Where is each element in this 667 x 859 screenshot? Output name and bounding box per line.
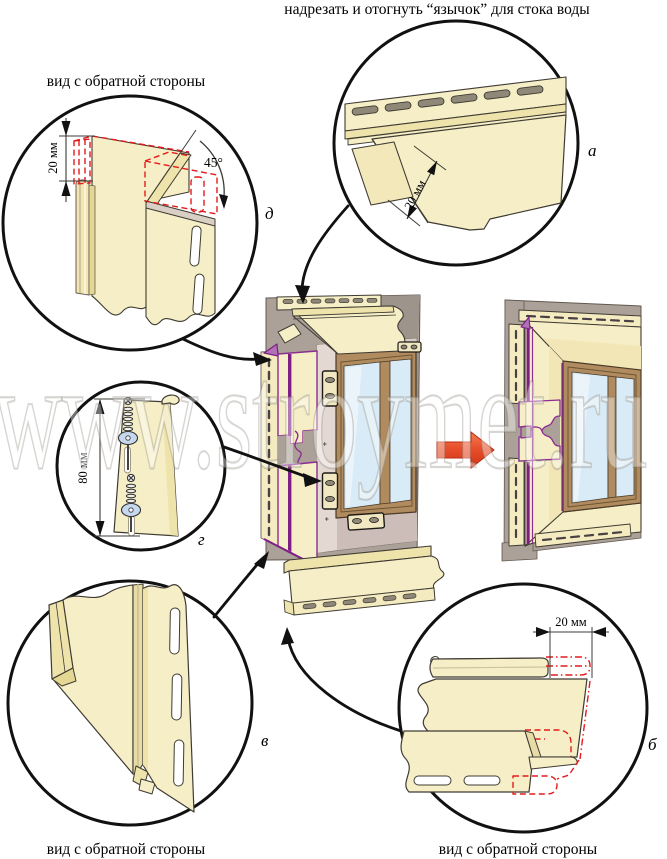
svg-text:вид с обратной стороны: вид с обратной стороны — [47, 841, 206, 858]
svg-text:45°: 45° — [204, 155, 223, 170]
svg-text:вид с обратной стороны: вид с обратной стороны — [47, 73, 206, 90]
svg-text:в: в — [261, 731, 269, 750]
svg-text:надрезать и отогнуть “язычок”: надрезать и отогнуть “язычок” для стока … — [284, 1, 590, 18]
svg-text:20 мм: 20 мм — [46, 142, 60, 174]
svg-text:а: а — [588, 141, 597, 160]
svg-text:www.stroymet.ru: www.stroymet.ru — [0, 332, 647, 500]
svg-text:д: д — [265, 204, 274, 223]
svg-text:20 мм: 20 мм — [555, 615, 587, 629]
svg-text:б: б — [648, 735, 657, 754]
svg-text:г: г — [198, 530, 205, 549]
svg-text:вид с обратной стороны: вид с обратной стороны — [439, 841, 598, 858]
